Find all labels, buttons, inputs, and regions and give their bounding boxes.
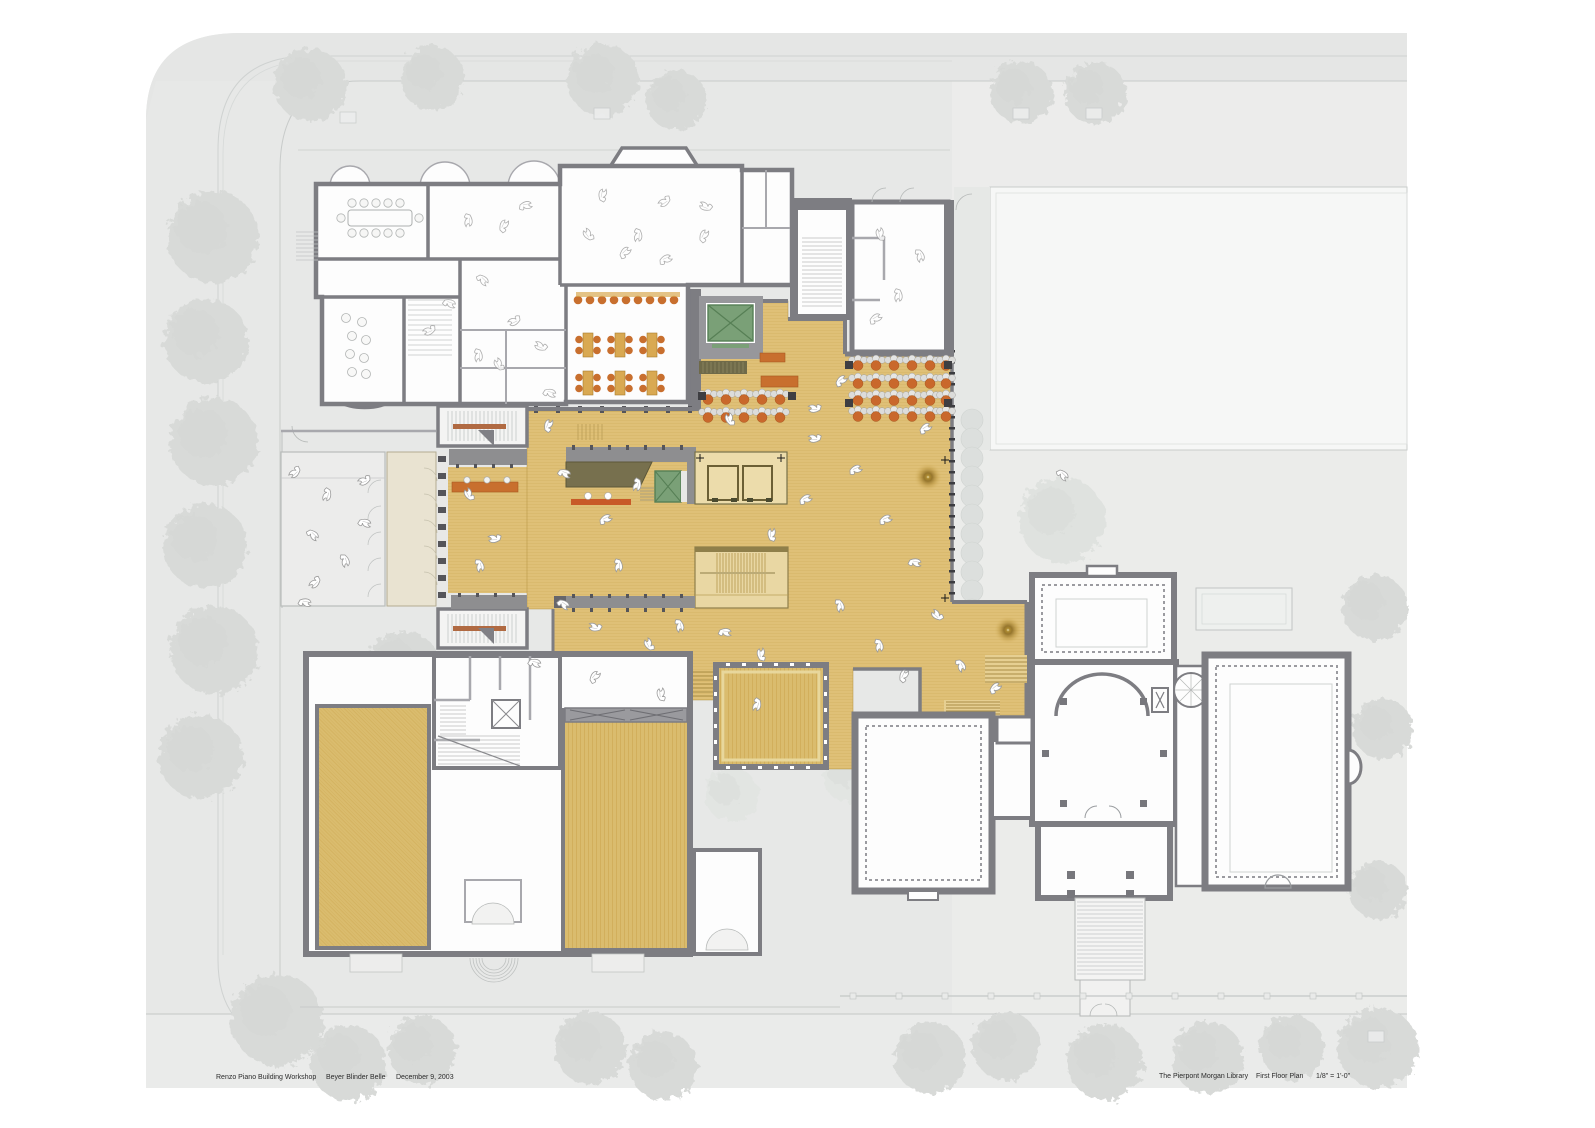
svg-text:Renzo Piano Building Workshop: Renzo Piano Building Workshop	[216, 1074, 316, 1081]
svg-text:December 9, 2003: December 9, 2003	[396, 1074, 454, 1081]
svg-text:Beyer Blinder Belle: Beyer Blinder Belle	[326, 1074, 386, 1081]
svg-text:The Pierpont Morgan Library: The Pierpont Morgan Library	[1159, 1073, 1249, 1080]
svg-text:First Floor Plan: First Floor Plan	[1256, 1073, 1304, 1080]
svg-text:1/8" = 1'-0": 1/8" = 1'-0"	[1316, 1073, 1351, 1080]
